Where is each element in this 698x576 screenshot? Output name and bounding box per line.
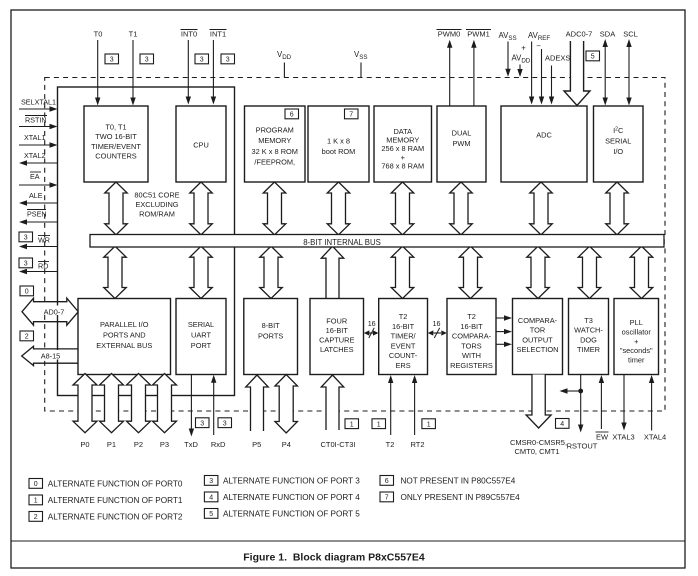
svg-text:ROM/RAM: ROM/RAM <box>139 210 175 219</box>
svg-text:Figure 1. Block diagram P8xC5: Figure 1. Block diagram P8xC557E4 <box>243 552 425 564</box>
svg-text:DOG: DOG <box>580 335 597 344</box>
svg-text:P1: P1 <box>107 440 116 449</box>
svg-text:EXTERNAL BUS: EXTERNAL BUS <box>96 341 152 350</box>
svg-text:16-BIT: 16-BIT <box>460 322 483 331</box>
svg-text:P0: P0 <box>80 440 89 449</box>
svg-text:6: 6 <box>385 478 389 485</box>
svg-text:PROGRAM: PROGRAM <box>256 126 294 135</box>
svg-text:OUTPUT: OUTPUT <box>522 335 553 344</box>
svg-text:T1: T1 <box>129 30 138 39</box>
svg-text:PORTS AND: PORTS AND <box>103 331 146 340</box>
svg-text:A8-15: A8-15 <box>41 352 60 361</box>
svg-text:4: 4 <box>209 495 213 502</box>
svg-text:7: 7 <box>349 112 353 119</box>
svg-text:RxD: RxD <box>211 440 226 449</box>
svg-text:1: 1 <box>427 421 431 428</box>
svg-text:/FEEPROM,: /FEEPROM, <box>254 157 295 166</box>
svg-text:SELXTAL1: SELXTAL1 <box>21 98 56 107</box>
svg-text:1: 1 <box>377 421 381 428</box>
svg-text:8-BIT INTERNAL BUS: 8-BIT INTERNAL BUS <box>303 238 381 247</box>
svg-text:+: + <box>401 153 405 162</box>
svg-text:PSEN: PSEN <box>27 210 47 219</box>
svg-text:UART: UART <box>191 331 211 340</box>
svg-text:PARALLEL I/O: PARALLEL I/O <box>100 320 149 329</box>
svg-text:DUAL: DUAL <box>452 128 472 137</box>
svg-text:256 x 8 RAM: 256 x 8 RAM <box>381 144 424 153</box>
svg-text:NOT PRESENT IN P80C557E4: NOT PRESENT IN P80C557E4 <box>401 477 516 486</box>
svg-text:3: 3 <box>24 235 28 242</box>
svg-text:boot ROM: boot ROM <box>322 147 356 156</box>
svg-text:EXCLUDING: EXCLUDING <box>135 200 178 209</box>
svg-text:CT0I-CT3I: CT0I-CT3I <box>320 440 355 449</box>
svg-text:EA: EA <box>30 172 40 181</box>
svg-text:ALTERNATE FUNCTION OF PORT 5: ALTERNATE FUNCTION OF PORT 5 <box>223 510 360 519</box>
svg-text:5: 5 <box>591 54 595 61</box>
svg-text:16-BIT: 16-BIT <box>392 322 415 331</box>
svg-text:+: + <box>634 337 638 346</box>
svg-text:T0, T1: T0, T1 <box>105 123 126 132</box>
svg-text:ADC: ADC <box>536 131 552 140</box>
svg-text:3: 3 <box>110 57 114 64</box>
svg-text:I/O: I/O <box>613 147 623 156</box>
svg-text:16: 16 <box>368 319 376 328</box>
svg-text:TWO 16-BIT: TWO 16-BIT <box>95 132 137 141</box>
svg-text:SCL: SCL <box>623 30 638 39</box>
svg-text:RSTOUT: RSTOUT <box>567 442 598 451</box>
svg-text:DATA: DATA <box>393 127 412 136</box>
svg-text:FOUR: FOUR <box>326 316 347 325</box>
svg-text:COUNTERS: COUNTERS <box>95 152 137 161</box>
svg-text:TIMER: TIMER <box>577 345 600 354</box>
svg-text:T2: T2 <box>386 440 395 449</box>
svg-text:2: 2 <box>34 514 38 521</box>
svg-text:RD: RD <box>38 262 48 271</box>
svg-text:PORT: PORT <box>191 341 212 350</box>
svg-text:16: 16 <box>433 319 441 328</box>
svg-text:AVSS: AVSS <box>499 31 517 42</box>
svg-text:TIMER/EVENT: TIMER/EVENT <box>91 142 141 151</box>
svg-text:VDD: VDD <box>277 50 292 61</box>
svg-text:P3: P3 <box>160 440 169 449</box>
svg-text:ERS: ERS <box>395 361 410 370</box>
svg-text:CMSR0-CMSR5,: CMSR0-CMSR5, <box>510 438 567 447</box>
svg-text:PWM: PWM <box>452 139 470 148</box>
svg-text:T0: T0 <box>94 30 103 39</box>
svg-text:REGISTERS: REGISTERS <box>450 361 493 370</box>
svg-text:EW: EW <box>596 433 609 442</box>
svg-text:3: 3 <box>226 57 230 64</box>
svg-text:1: 1 <box>350 421 354 428</box>
svg-text:T2: T2 <box>399 312 408 321</box>
svg-text:T3: T3 <box>584 316 593 325</box>
svg-text:768 x 8 RAM: 768 x 8 RAM <box>381 162 424 171</box>
svg-text:CMT0, CMT1: CMT0, CMT1 <box>515 447 560 456</box>
svg-text:ADEXS: ADEXS <box>545 54 570 63</box>
svg-text:6: 6 <box>290 112 294 119</box>
svg-text:LATCHES: LATCHES <box>320 345 354 354</box>
svg-text:PWM1: PWM1 <box>467 30 490 39</box>
svg-text:WR: WR <box>38 236 50 245</box>
svg-text:COMPARA-: COMPARA- <box>452 332 492 341</box>
svg-text:AVDD: AVDD <box>512 54 531 65</box>
svg-text:oscillator: oscillator <box>622 327 652 336</box>
svg-text:ALE: ALE <box>29 191 43 200</box>
svg-text:ALTERNATE FUNCTION OF PORT 3: ALTERNATE FUNCTION OF PORT 3 <box>223 477 360 486</box>
svg-text:SDA: SDA <box>600 30 615 39</box>
svg-text:XTAL3: XTAL3 <box>612 433 634 442</box>
svg-text:RT2: RT2 <box>410 440 424 449</box>
svg-text:"seconds": "seconds" <box>620 346 653 355</box>
svg-text:3: 3 <box>145 57 149 64</box>
svg-text:3: 3 <box>223 420 227 427</box>
svg-text:AD0-7: AD0-7 <box>44 308 65 317</box>
svg-text:3: 3 <box>200 57 204 64</box>
svg-text:4: 4 <box>560 421 564 428</box>
svg-text:+: + <box>521 44 526 53</box>
svg-text:3: 3 <box>209 478 213 485</box>
svg-text:1: 1 <box>34 498 38 505</box>
svg-text:−: − <box>536 41 541 50</box>
svg-text:2: 2 <box>25 334 29 341</box>
svg-text:MEMORY: MEMORY <box>386 136 419 145</box>
svg-text:XTAL2: XTAL2 <box>24 151 45 160</box>
svg-text:TOR: TOR <box>530 326 545 335</box>
svg-text:TORS: TORS <box>461 341 481 350</box>
svg-text:INT0: INT0 <box>181 30 197 39</box>
svg-text:COUNT-: COUNT- <box>389 351 418 360</box>
svg-text:T2: T2 <box>467 312 476 321</box>
svg-text:timer: timer <box>628 356 645 365</box>
svg-text:P5: P5 <box>252 440 261 449</box>
svg-text:CPU: CPU <box>193 141 209 150</box>
svg-text:TxD: TxD <box>184 440 198 449</box>
svg-text:WITH: WITH <box>462 351 481 360</box>
svg-text:SELECTION: SELECTION <box>517 345 559 354</box>
svg-text:SERIAL: SERIAL <box>188 320 214 329</box>
svg-text:PORTS: PORTS <box>258 332 283 341</box>
svg-text:3: 3 <box>200 420 204 427</box>
svg-text:P4: P4 <box>282 440 291 449</box>
svg-text:PLL: PLL <box>630 318 643 327</box>
svg-text:I2C: I2C <box>613 126 624 135</box>
svg-text:16-BIT: 16-BIT <box>326 326 349 335</box>
svg-text:80C51 CORE: 80C51 CORE <box>134 191 179 200</box>
svg-text:1 K x 8: 1 K x 8 <box>327 137 350 146</box>
svg-text:XTAL4: XTAL4 <box>644 433 666 442</box>
svg-text:0: 0 <box>34 481 38 488</box>
svg-text:CAPTURE: CAPTURE <box>319 335 354 344</box>
svg-text:TIMER/: TIMER/ <box>391 332 417 341</box>
svg-text:RSTIN: RSTIN <box>25 116 47 125</box>
svg-text:XTAL1: XTAL1 <box>24 133 45 142</box>
svg-text:7: 7 <box>385 495 389 502</box>
svg-text:ALTERNATE FUNCTION OF PORT2: ALTERNATE FUNCTION OF PORT2 <box>48 513 183 522</box>
svg-text:32 K x 8 ROM: 32 K x 8 ROM <box>252 147 298 156</box>
svg-text:3: 3 <box>24 261 28 268</box>
svg-text:PWM0: PWM0 <box>438 30 461 39</box>
svg-text:ONLY PRESENT IN P89C557E4: ONLY PRESENT IN P89C557E4 <box>401 493 521 502</box>
svg-text:P2: P2 <box>134 440 143 449</box>
svg-text:ADC0-7: ADC0-7 <box>566 30 593 39</box>
svg-text:8-BIT: 8-BIT <box>262 321 281 330</box>
svg-text:MEMORY: MEMORY <box>258 136 291 145</box>
svg-text:VSS: VSS <box>354 50 367 61</box>
svg-text:0: 0 <box>25 289 29 296</box>
svg-text:SERIAL: SERIAL <box>605 136 631 145</box>
svg-text:EVENT: EVENT <box>391 341 416 350</box>
svg-text:WATCH-: WATCH- <box>574 326 603 335</box>
svg-text:ALTERNATE FUNCTION OF PORT1: ALTERNATE FUNCTION OF PORT1 <box>48 496 183 505</box>
svg-text:5: 5 <box>209 511 213 518</box>
svg-text:INT1: INT1 <box>210 30 226 39</box>
svg-text:ALTERNATE FUNCTION OF PORT0: ALTERNATE FUNCTION OF PORT0 <box>48 480 183 489</box>
svg-text:ALTERNATE FUNCTION OF PORT 4: ALTERNATE FUNCTION OF PORT 4 <box>223 493 360 502</box>
svg-text:COMPARA-: COMPARA- <box>518 316 558 325</box>
